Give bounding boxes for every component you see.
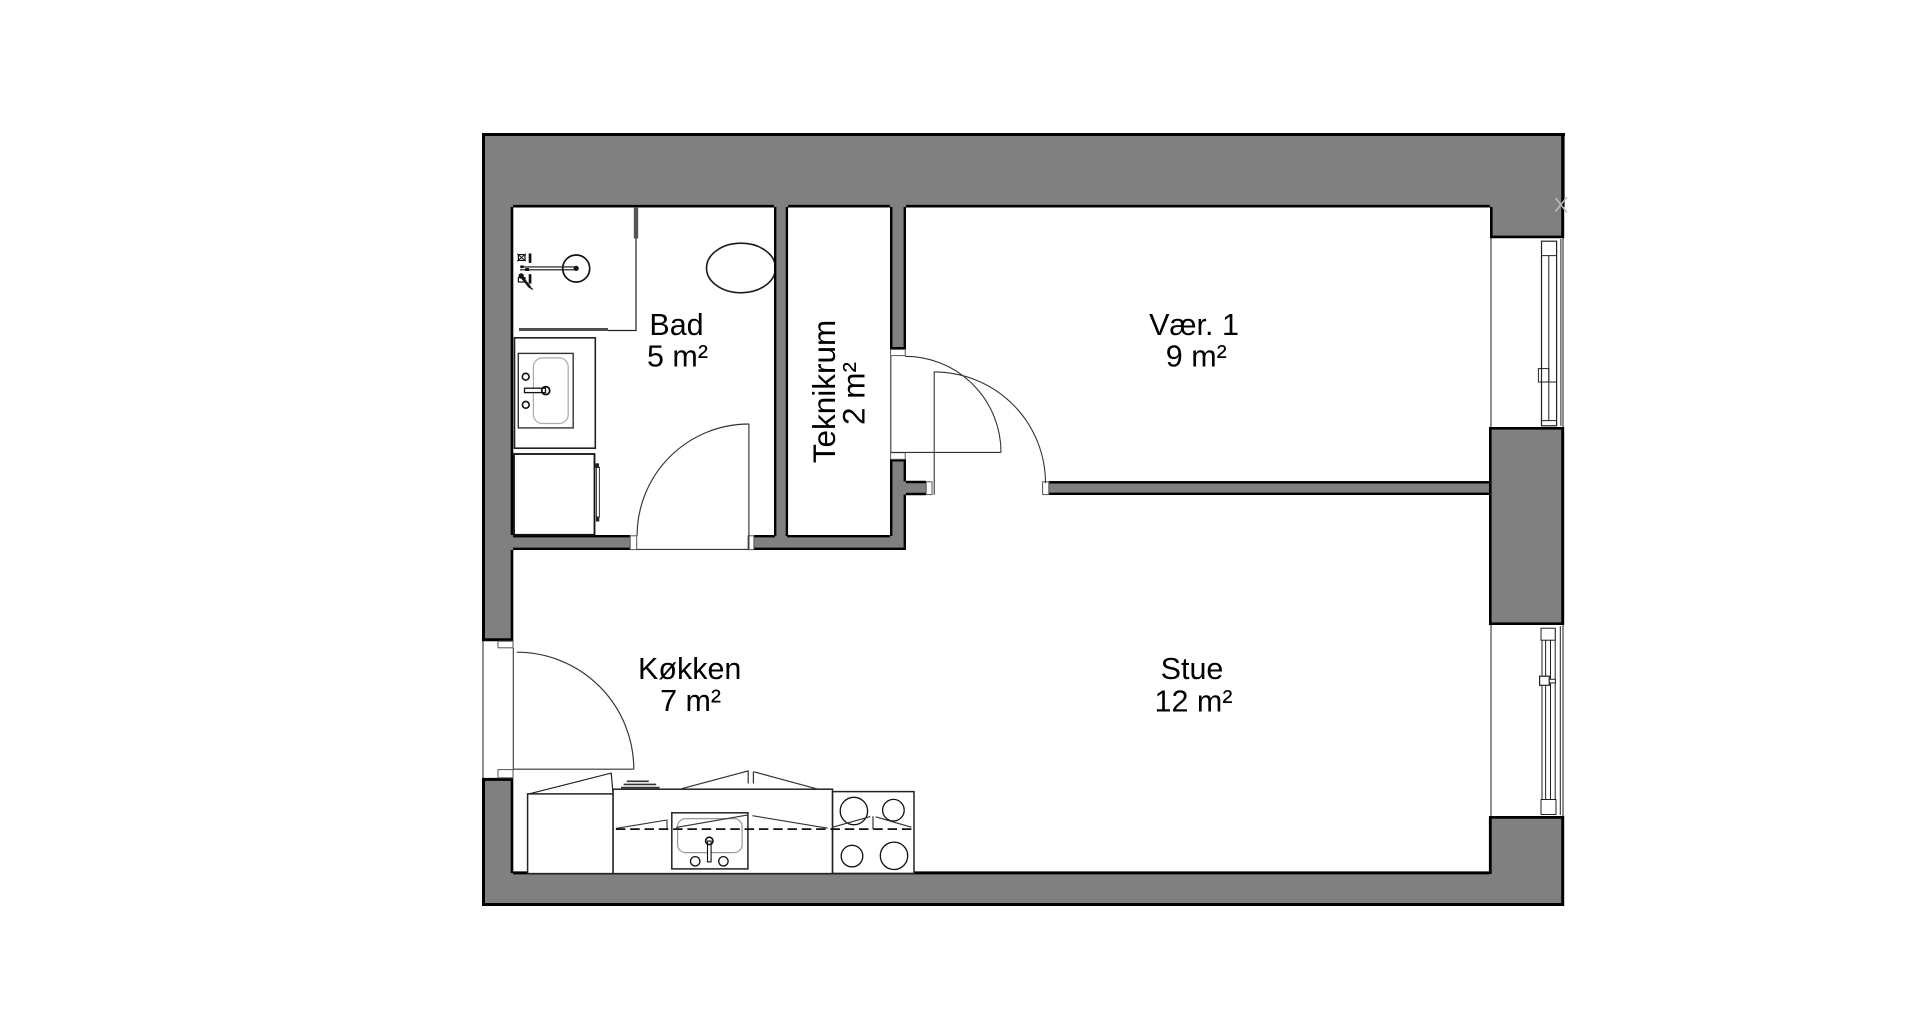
svg-text:Bad: Bad	[649, 308, 703, 342]
svg-text:12 m²: 12 m²	[1155, 685, 1233, 719]
svg-text:Stue: Stue	[1161, 652, 1224, 686]
svg-text:5 m²: 5 m²	[647, 340, 708, 374]
svg-text:Køkken: Køkken	[638, 652, 741, 686]
svg-text:9 m²: 9 m²	[1166, 340, 1227, 374]
svg-text:7 m²: 7 m²	[660, 684, 721, 718]
svg-text:Vær. 1: Vær. 1	[1149, 308, 1239, 342]
svg-text:2 m²: 2 m²	[836, 362, 872, 425]
